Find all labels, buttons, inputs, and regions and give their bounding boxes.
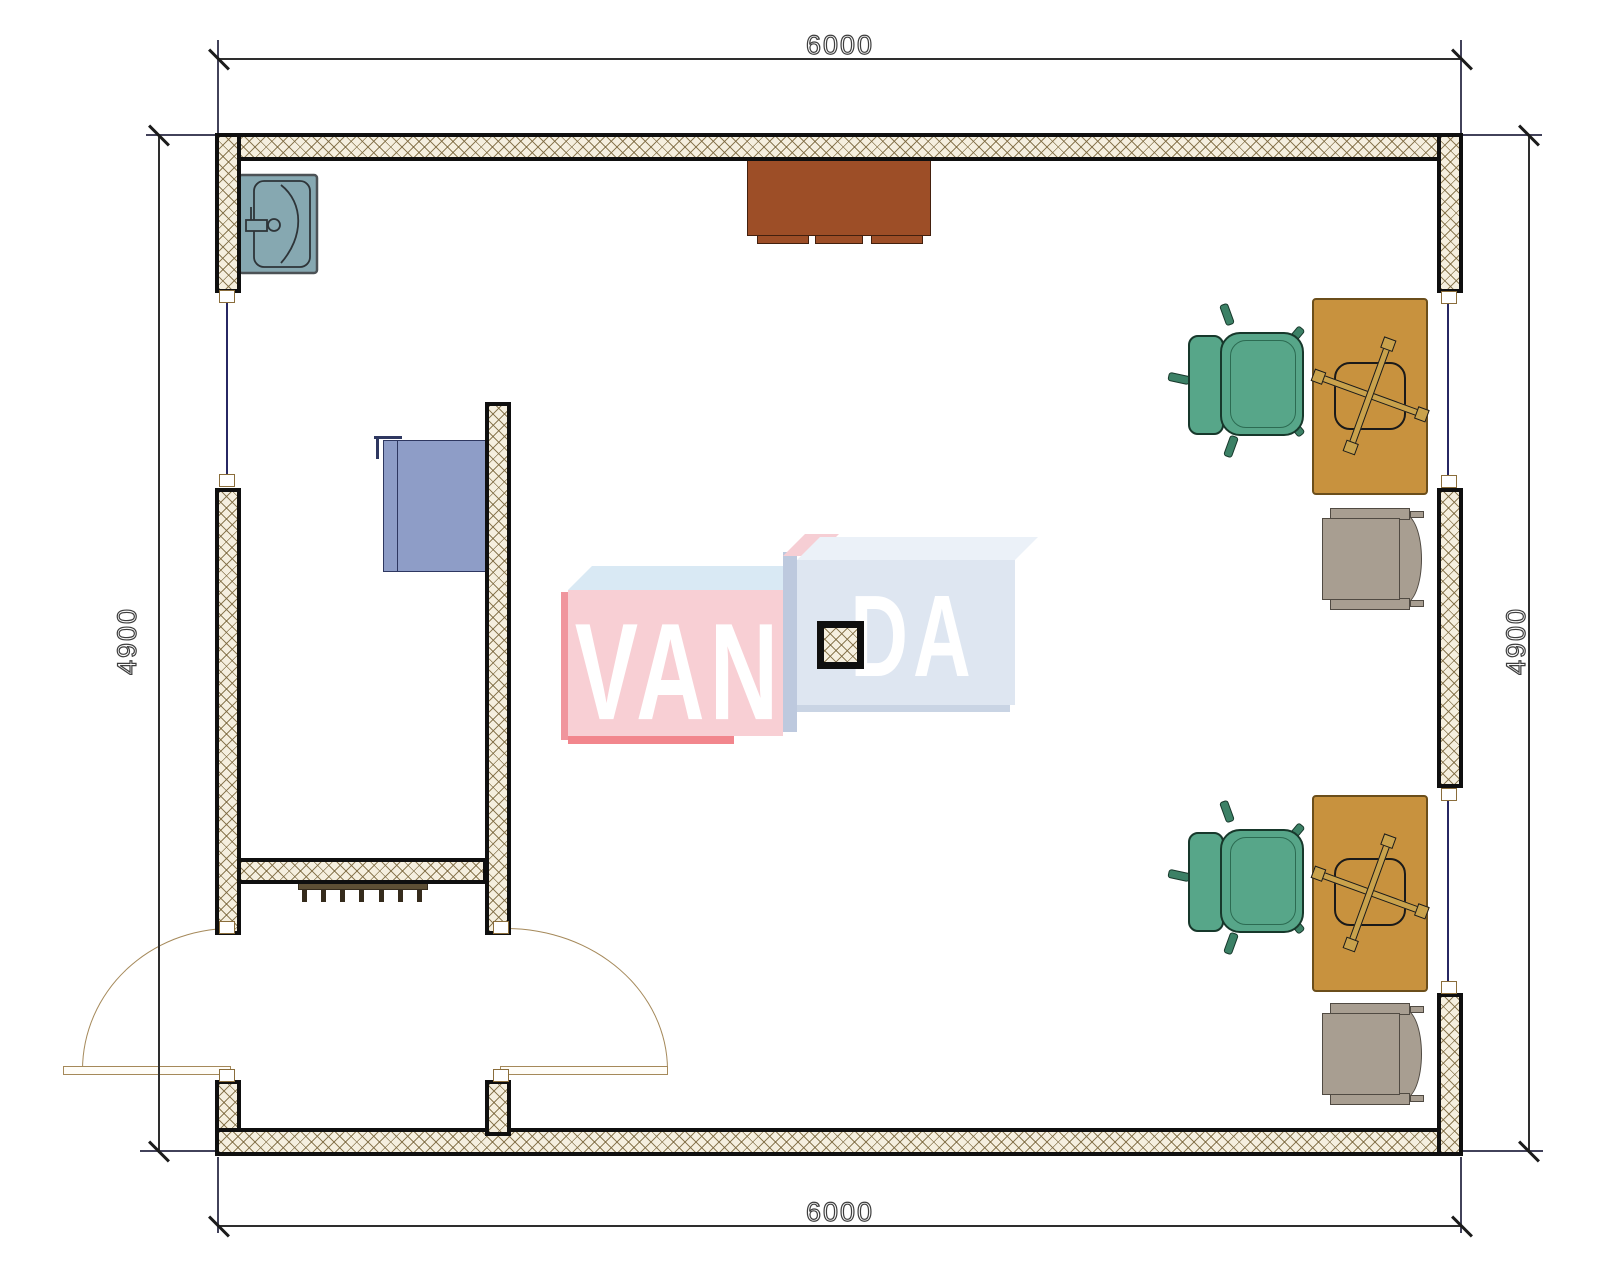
- door-leaf-right: [500, 1066, 668, 1075]
- watermark-text-right: DA: [843, 592, 983, 682]
- door-hinge: [493, 921, 509, 934]
- dim-top-label: 6000: [770, 32, 910, 58]
- window-frame: [1441, 291, 1457, 304]
- dim-left-line: [158, 134, 160, 1153]
- chair-back: [1188, 335, 1224, 435]
- door-hinge: [219, 1069, 235, 1082]
- window-frame: [1441, 981, 1457, 994]
- office-chair-lower: [1172, 807, 1312, 952]
- cabinet-tab: [757, 235, 809, 244]
- wall-right-lower: [1437, 993, 1463, 1156]
- dim-bottom-ext-right: [1460, 1157, 1462, 1233]
- window-frame: [1441, 788, 1457, 801]
- counter-hook-vertical: [376, 439, 379, 459]
- wall-left-upper: [215, 133, 241, 293]
- radiator-fin: [340, 890, 345, 902]
- watermark-text-left: VAN: [566, 612, 792, 734]
- dim-top-ext-right: [1460, 40, 1462, 135]
- dim-right-label: 4900: [1503, 576, 1529, 706]
- radiator-fin: [398, 890, 403, 902]
- wall-inner-room-south: [237, 858, 487, 884]
- counter-side-strip: [383, 440, 398, 572]
- window-glazing-right-2: [1447, 801, 1449, 983]
- sink-icon: [237, 173, 319, 275]
- radiator-fin: [321, 890, 326, 902]
- dim-bottom-label: 6000: [770, 1199, 910, 1225]
- wall-bottom: [215, 1128, 1463, 1156]
- dim-bottom-ext-left: [217, 1157, 219, 1233]
- chair-back: [1188, 832, 1224, 932]
- wall-right-upper: [1437, 133, 1463, 293]
- radiator-fin: [359, 890, 364, 902]
- dim-top-ext-left: [217, 40, 219, 135]
- office-chair-upper: [1172, 310, 1312, 455]
- dim-left-label: 4900: [114, 576, 140, 706]
- door-swing-arc-left: [82, 928, 231, 1070]
- window-frame: [1441, 475, 1457, 488]
- window-frame: [219, 290, 235, 303]
- watermark-blue-box-bottom-edge: [797, 705, 1010, 712]
- radiator-fin: [379, 890, 384, 902]
- wall-cabinet: [747, 157, 931, 236]
- watermark-blue-box-top-face: [797, 537, 1038, 560]
- watermark-pink-box-top-face: [568, 566, 814, 590]
- window-frame: [219, 474, 235, 487]
- door-hinge: [493, 1069, 509, 1082]
- wall-right-pier: [1437, 488, 1463, 788]
- wall-partition: [485, 402, 511, 935]
- counter-top: [397, 440, 487, 572]
- wall-top: [215, 133, 1463, 161]
- structural-column: [817, 621, 864, 669]
- armchair-lower: [1320, 1000, 1424, 1108]
- cabinet-tab: [815, 235, 863, 244]
- armchair-seat: [1322, 1013, 1400, 1095]
- radiator-fin: [417, 890, 422, 902]
- wall-partition-door-stub: [485, 1080, 511, 1136]
- door-hinge: [219, 921, 235, 934]
- window-glazing-right-1: [1447, 302, 1449, 478]
- door-swing-arc-right: [506, 928, 668, 1070]
- door-leaf-left: [63, 1066, 231, 1075]
- radiator-fin: [302, 890, 307, 902]
- cabinet-tab: [871, 235, 923, 244]
- sink: [237, 173, 319, 280]
- armchair-seat: [1322, 518, 1400, 600]
- dim-left-ext-bottom: [140, 1150, 217, 1152]
- armchair-upper: [1320, 505, 1424, 613]
- floor-plan-canvas: VAN DA: [0, 0, 1600, 1280]
- window-glazing-left: [226, 300, 228, 478]
